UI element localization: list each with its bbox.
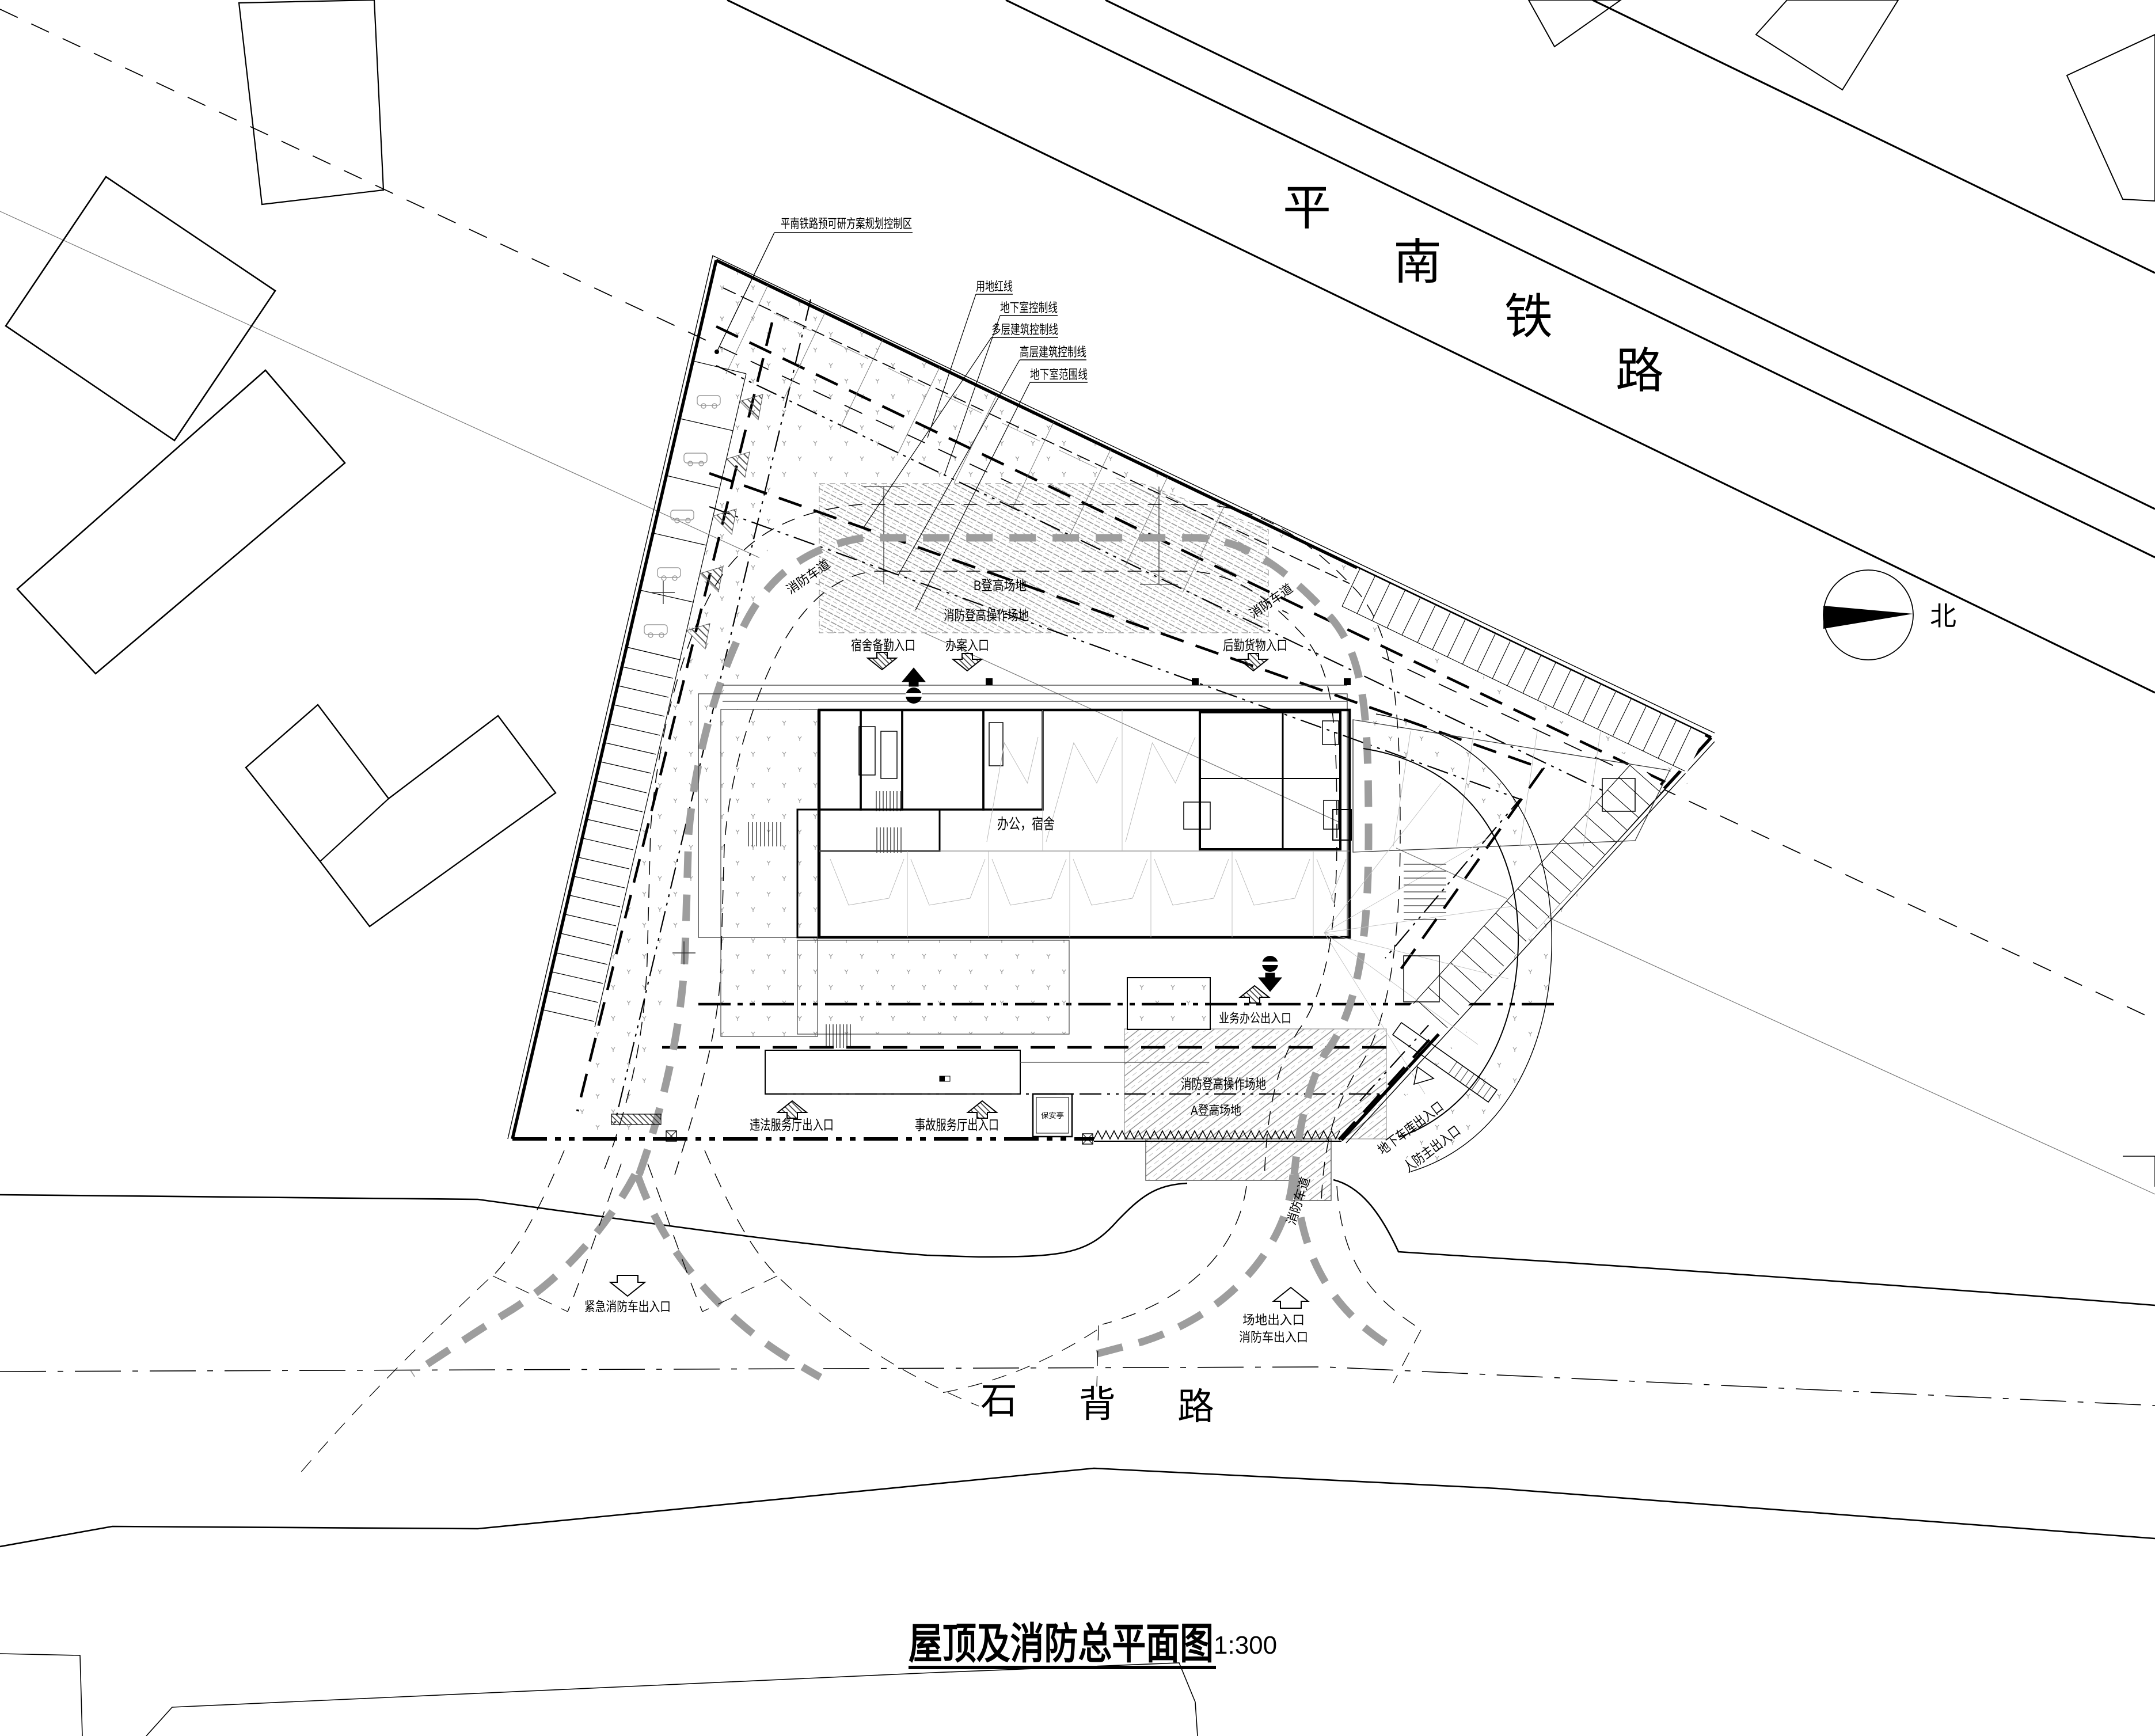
svg-text:紧急消防车出入口: 紧急消防车出入口 bbox=[584, 1299, 671, 1314]
svg-text:南: 南 bbox=[1393, 235, 1442, 289]
svg-text:A登高场地: A登高场地 bbox=[1191, 1103, 1241, 1118]
svg-text:高层建筑控制线: 高层建筑控制线 bbox=[1020, 345, 1086, 359]
svg-text:铁: 铁 bbox=[1504, 290, 1553, 344]
svg-text:消防登高操作场地: 消防登高操作场地 bbox=[1181, 1077, 1266, 1092]
svg-text:后勤货物入口: 后勤货物入口 bbox=[1223, 638, 1287, 654]
svg-text:B登高场地: B登高场地 bbox=[974, 578, 1027, 594]
svg-text:路: 路 bbox=[1616, 344, 1664, 398]
svg-text:路: 路 bbox=[1177, 1386, 1214, 1427]
svg-text:办案入口: 办案入口 bbox=[945, 638, 989, 654]
svg-text:多层建筑控制线: 多层建筑控制线 bbox=[991, 322, 1058, 337]
svg-text:宿舍备勤入口: 宿舍备勤入口 bbox=[851, 638, 915, 654]
svg-text:1:300: 1:300 bbox=[1214, 1631, 1277, 1659]
svg-text:地下室范围线: 地下室范围线 bbox=[1030, 367, 1088, 382]
svg-text:背: 背 bbox=[1079, 1384, 1116, 1425]
svg-text:场地出入口: 场地出入口 bbox=[1242, 1313, 1305, 1327]
svg-text:保安亭: 保安亭 bbox=[1041, 1111, 1064, 1120]
svg-text:石: 石 bbox=[980, 1380, 1017, 1422]
svg-text:事故服务厅出入口: 事故服务厅出入口 bbox=[915, 1118, 999, 1133]
svg-text:平: 平 bbox=[1283, 181, 1331, 235]
svg-text:北: 北 bbox=[1930, 601, 1956, 631]
svg-text:办公，宿舍: 办公，宿舍 bbox=[997, 815, 1055, 833]
svg-text:消防车出入口: 消防车出入口 bbox=[1239, 1330, 1308, 1344]
svg-text:平南铁路预可研方案规划控制区: 平南铁路预可研方案规划控制区 bbox=[781, 216, 912, 231]
svg-text:消防登高操作场地: 消防登高操作场地 bbox=[944, 608, 1029, 624]
svg-text:地下室控制线: 地下室控制线 bbox=[1000, 301, 1058, 315]
svg-text:违法服务厅出入口: 违法服务厅出入口 bbox=[750, 1118, 834, 1133]
svg-text:屋顶及消防总平面图: 屋顶及消防总平面图 bbox=[909, 1620, 1214, 1667]
svg-text:业务办公出入口: 业务办公出入口 bbox=[1219, 1011, 1291, 1025]
svg-text:用地红线: 用地红线 bbox=[976, 279, 1013, 294]
